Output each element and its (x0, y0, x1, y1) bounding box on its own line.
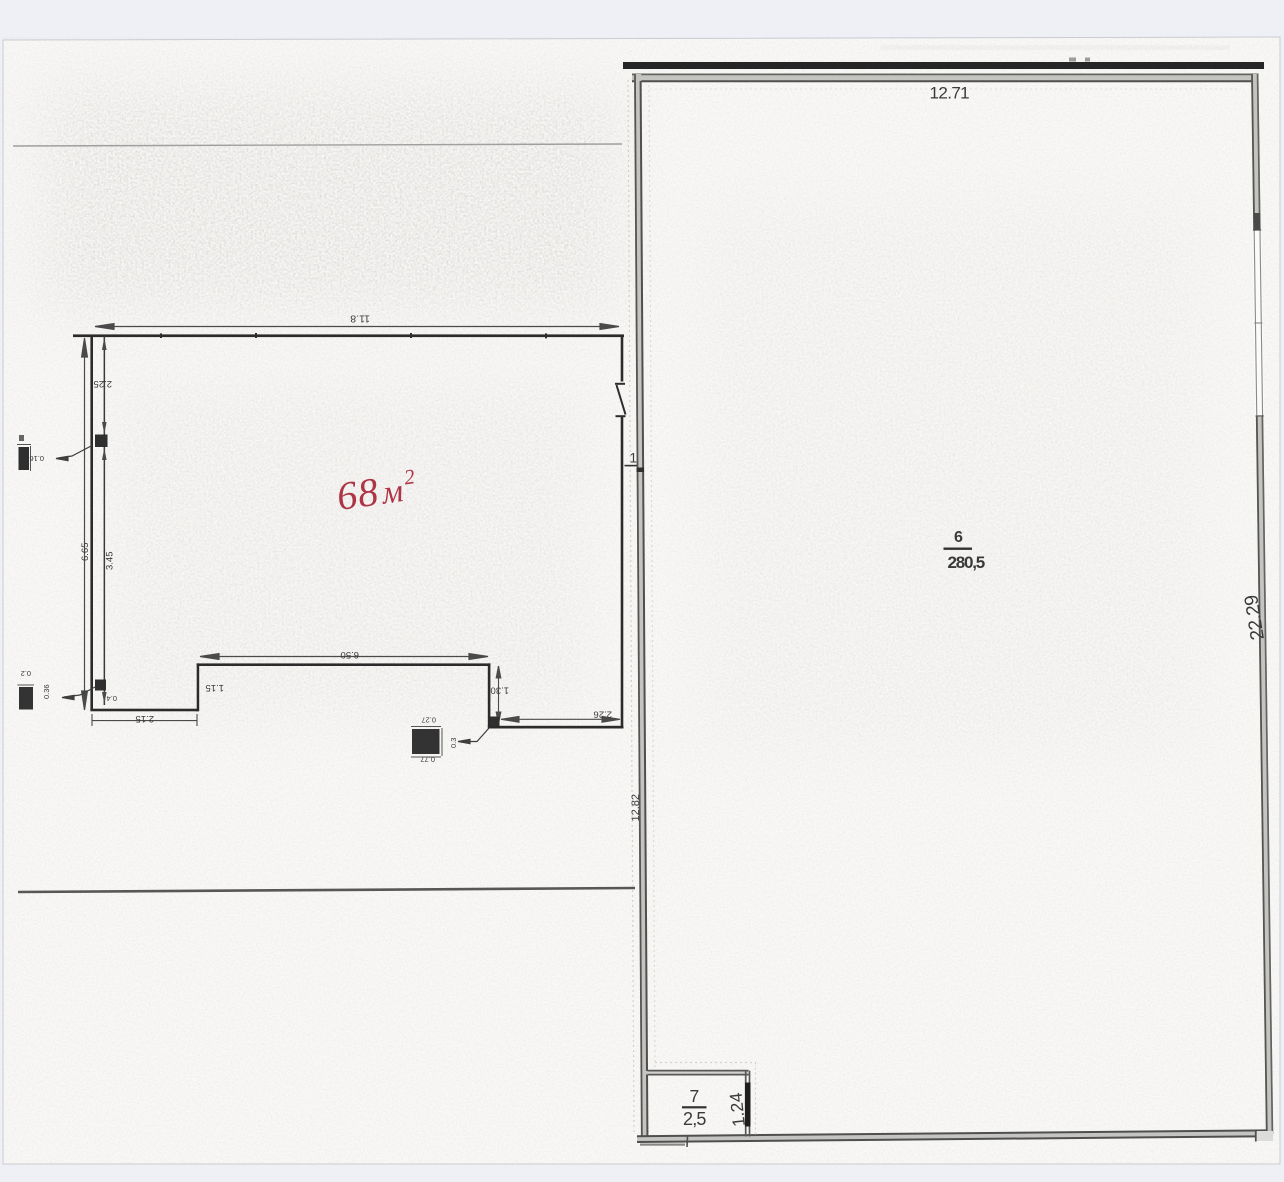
svg-text:7: 7 (690, 1086, 700, 1106)
svg-text:1.24: 1.24 (725, 1091, 748, 1127)
svg-text:0.3: 0.3 (449, 738, 458, 748)
svg-text:0.36: 0.36 (42, 684, 51, 699)
svg-text:1: 1 (630, 451, 638, 466)
svg-text:2,5: 2,5 (683, 1109, 706, 1129)
svg-text:0.16: 0.16 (29, 454, 44, 463)
svg-text:6.50: 6.50 (341, 649, 360, 660)
svg-text:0.27: 0.27 (421, 716, 436, 725)
svg-text:11.8: 11.8 (350, 313, 370, 325)
svg-text:1.30: 1.30 (491, 685, 510, 696)
svg-text:0.4: 0.4 (107, 694, 117, 703)
svg-text:2.26: 2.26 (594, 709, 613, 720)
svg-text:3.45: 3.45 (105, 552, 116, 571)
svg-text:0.2: 0.2 (21, 669, 31, 678)
svg-text:0.77: 0.77 (420, 755, 435, 764)
svg-text:6: 6 (954, 529, 963, 546)
svg-text:1.15: 1.15 (206, 682, 225, 693)
svg-text:2.25: 2.25 (94, 378, 113, 389)
svg-text:6.65: 6.65 (80, 543, 91, 562)
svg-text:12.82: 12.82 (630, 794, 642, 822)
svg-text:12.71: 12.71 (930, 84, 970, 103)
svg-text:2.15: 2.15 (136, 713, 155, 724)
svg-text:280,5: 280,5 (948, 553, 985, 572)
